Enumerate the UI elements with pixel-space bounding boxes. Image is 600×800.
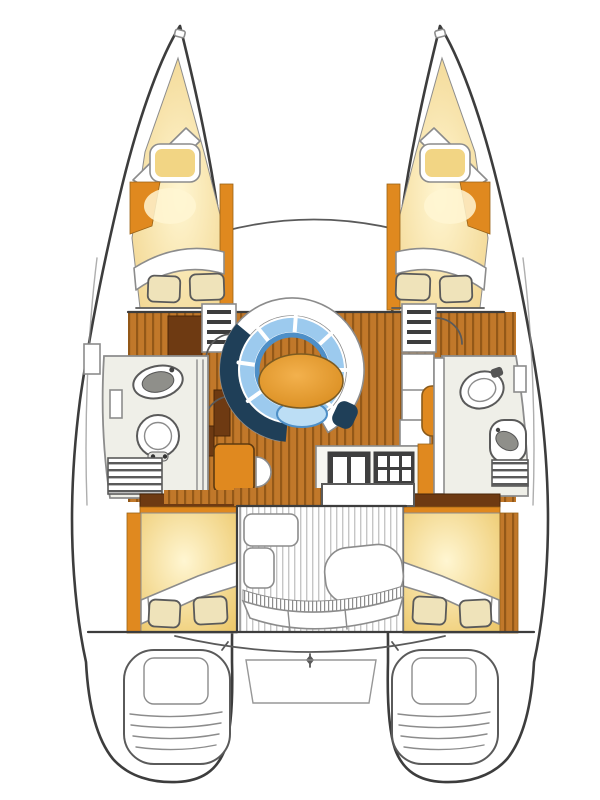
starboard-berth-glow: [424, 188, 476, 224]
cockpit-side-seat: [244, 548, 274, 588]
galley-back-counter: [234, 488, 322, 506]
starboard-step: [407, 320, 431, 324]
port-aft-side-strip: [127, 513, 141, 633]
port-bow-cleat: [174, 29, 185, 38]
port-bow-pillow: [155, 149, 195, 177]
starboard-aft-side-strip: [500, 513, 518, 633]
starboard-head-shelf: [514, 366, 526, 392]
starboard-step: [407, 310, 431, 314]
starboard-head-drawers: [492, 460, 528, 486]
nav-chart-table: [214, 444, 254, 492]
starboard-step: [407, 340, 431, 344]
boarding-platform: [246, 660, 376, 703]
starboard-sink-faucet: [496, 428, 500, 432]
starboard-forward-pillow-right: [440, 275, 473, 302]
stove-burner: [402, 470, 411, 481]
stove-burner: [390, 470, 399, 481]
port-step: [207, 330, 231, 334]
boat-plan-stage: [0, 0, 600, 800]
starboard-sink: [490, 420, 526, 462]
port-toilet-bowl: [137, 415, 179, 457]
stove-burner: [390, 456, 399, 467]
starboard-bow-berth: [387, 58, 490, 310]
port-head-drawers: [108, 458, 162, 494]
stove-burner: [378, 470, 387, 481]
port-head-shelf: [110, 390, 122, 418]
port-aft-cabin: [127, 494, 237, 633]
port-bow-berth: [130, 58, 233, 310]
port-aft-header-trim: [140, 507, 237, 513]
cockpit-side-seat: [244, 514, 298, 546]
stove-burner: [402, 456, 411, 467]
salon-table: [259, 354, 343, 408]
nav-back-counter: [164, 490, 234, 504]
port-forward-pillow-left: [148, 275, 181, 302]
starboard-aft-header: [403, 494, 500, 507]
starboard-aft-cabin: [403, 494, 518, 633]
galley-sink-basin: [333, 457, 347, 483]
settee-cushion-gap: [239, 363, 257, 366]
port-transom-steps: [124, 650, 230, 764]
port-forward-pillow-right: [190, 273, 225, 300]
starboard-step: [407, 330, 431, 334]
starboard-aft-header-trim: [403, 507, 500, 513]
settee-cushion-gap: [295, 316, 296, 334]
port-head-shelf: [84, 344, 100, 374]
companionway-door: [322, 484, 414, 506]
salon-settee: [220, 298, 364, 442]
port-aft-pillow-right: [193, 596, 227, 625]
forward-crossbeam: [221, 219, 399, 232]
starboard-aft-pillow-right: [459, 599, 491, 628]
port-step: [207, 320, 231, 324]
starboard-head: [434, 356, 528, 496]
starboard-transom-steps: [392, 650, 498, 764]
port-toilet-bolt: [163, 454, 167, 458]
transom: [88, 632, 534, 764]
stove-burner: [378, 456, 387, 467]
starboard-forward-pillow-left: [396, 273, 431, 300]
starboard-bow-pillow: [425, 149, 465, 177]
starboard-head-door: [434, 358, 444, 494]
galley-sink-basin: [351, 457, 365, 483]
starboard-aft-pillow-left: [412, 596, 446, 625]
port-berth-glow: [144, 188, 196, 224]
starboard-bow-cleat: [434, 29, 445, 38]
port-aft-pillow-left: [148, 599, 180, 628]
catamaran-floor-plan: [0, 0, 600, 800]
port-step: [207, 310, 231, 314]
